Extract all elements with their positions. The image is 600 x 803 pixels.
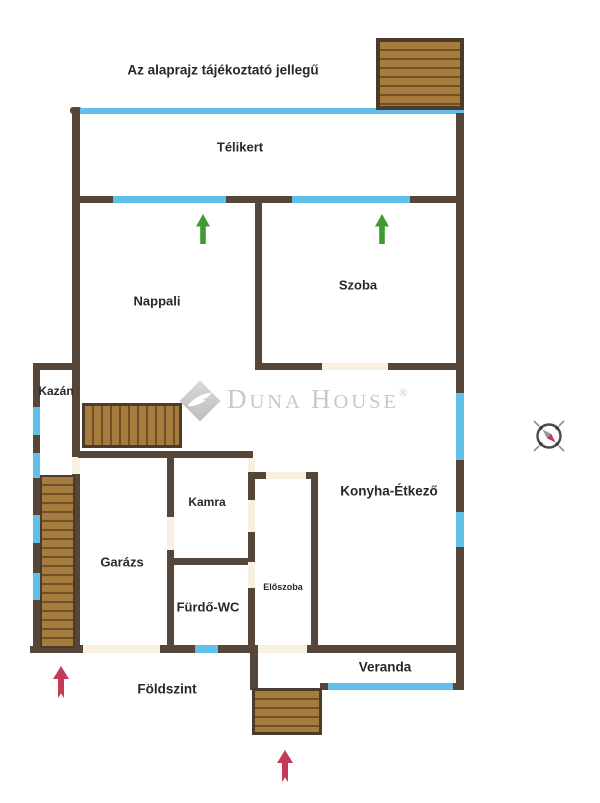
wall-segment [226, 196, 292, 203]
door-opening [322, 363, 388, 370]
floor-plan: Az alaprajz tájékoztató jellegű [0, 0, 600, 803]
wall-segment [160, 645, 195, 653]
wall-segment [33, 478, 40, 515]
wall-segment [410, 196, 464, 203]
brand-letter: H [311, 384, 334, 414]
registered-mark: ® [399, 387, 407, 399]
wall-segment [311, 472, 318, 652]
brand-letters: UNA [250, 391, 303, 413]
wall-segment [72, 108, 80, 457]
room-label-kazan: Kazán [38, 384, 73, 398]
room-label-konyha-etkezo: Konyha-Étkező [340, 484, 438, 499]
brand-wordmark: DUNA HOUSE® [227, 386, 407, 413]
door-opening [266, 472, 306, 479]
wall-segment [307, 645, 464, 653]
wall-segment [167, 451, 174, 517]
wall-segment [248, 472, 266, 479]
room-label-veranda: Veranda [359, 660, 412, 675]
disclaimer-text: Az alaprajz tájékoztató jellegű [127, 63, 318, 78]
wall-segment [248, 588, 255, 645]
stairs-interior [82, 403, 182, 448]
red-up-arrow-icon [277, 750, 293, 782]
wall-segment [456, 547, 464, 690]
wall-segment [167, 558, 253, 565]
wall-segment [72, 196, 113, 203]
window-segment [113, 196, 226, 203]
compass-icon [527, 414, 571, 458]
wall-segment [33, 543, 40, 573]
window-segment [33, 407, 40, 435]
red-up-arrow-icon [53, 666, 69, 698]
door-opening [258, 645, 307, 653]
window-segment [292, 196, 410, 203]
wall-segment [78, 451, 253, 458]
room-label-szoba: Szoba [339, 278, 377, 293]
wall-segment [167, 550, 174, 652]
wall-segment [250, 645, 258, 690]
door-opening [248, 562, 255, 588]
window-segment [33, 515, 40, 543]
room-label-nappali: Nappali [134, 294, 181, 309]
green-up-arrow-icon [196, 214, 210, 244]
garage-door-opening [83, 645, 160, 653]
room-label-furdo-wc: Fürdő-WC [177, 600, 240, 615]
room-label-telikert: Télikert [217, 140, 263, 155]
wall-segment [388, 363, 456, 370]
wall-segment [255, 203, 262, 363]
door-opening [72, 457, 80, 474]
green-up-arrow-icon [375, 214, 389, 244]
window-segment [328, 683, 453, 690]
room-label-garazs: Garázs [100, 555, 143, 570]
brand-letter: D [227, 384, 250, 414]
brand-letters: OUSE [334, 391, 400, 413]
stairs-bottom-exterior [252, 688, 322, 735]
window-segment [195, 645, 218, 653]
wall-segment [456, 460, 464, 512]
wall-segment [33, 600, 40, 652]
window-segment [33, 453, 40, 478]
window-segment [456, 512, 464, 547]
room-label-kamra: Kamra [188, 495, 225, 509]
stairs-left-exterior [40, 475, 75, 648]
wall-segment [33, 435, 40, 453]
floor-label: Földszint [137, 682, 196, 697]
wall-segment [248, 532, 255, 562]
door-opening [167, 517, 174, 550]
door-opening [248, 500, 255, 532]
duna-house-diamond-icon [177, 378, 223, 424]
stairs-top-right [376, 38, 464, 110]
wall-segment [456, 113, 464, 393]
room-label-eloszoba: Előszoba [263, 582, 303, 592]
window-segment [33, 573, 40, 600]
window-segment [456, 393, 464, 460]
wall-segment [255, 363, 322, 370]
wall-segment [453, 683, 464, 690]
